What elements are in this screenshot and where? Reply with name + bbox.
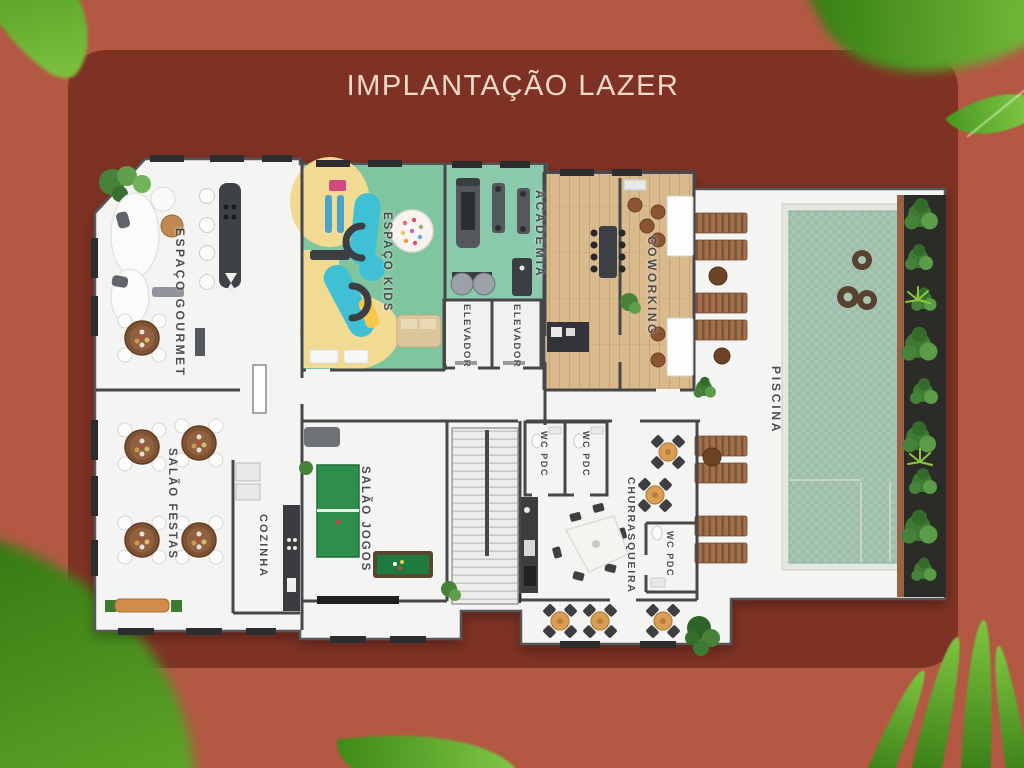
label-espaco-kids: ESPAÇO KIDS	[381, 212, 393, 312]
label-cozinha: COZINHA	[257, 514, 269, 578]
floor-plan-graphic	[0, 0, 1024, 768]
slide: IMPLANTAÇÃO LAZER	[0, 0, 1024, 768]
label-wc-pdc-1: WC PDC	[539, 431, 549, 477]
label-piscina: PISCINA	[769, 366, 783, 434]
label-elevador-1: ELEVADOR	[461, 304, 472, 368]
label-salao-festas: SALÃO FESTAS	[166, 448, 178, 560]
stairs	[452, 428, 518, 604]
hall-door	[253, 365, 266, 413]
label-coworking: COWORKING	[645, 236, 659, 336]
pool	[782, 204, 906, 570]
label-wc-pdc-3: WC PDC	[665, 531, 675, 577]
label-wc-pdc-2: WC PDC	[581, 431, 591, 477]
label-churrasqueira: CHURRASQUEIRA	[625, 477, 637, 594]
floor-plan: ESPAÇO GOURMET SALÃO FESTAS COZINHA ESPA…	[0, 0, 1024, 768]
label-salao-jogos: SALÃO JOGOS	[359, 466, 371, 572]
label-academia: ACADEMIA	[533, 190, 547, 279]
label-elevador-2: ELEVADOR	[511, 304, 522, 368]
ball-pit	[391, 210, 433, 252]
planter	[897, 195, 946, 597]
label-espaco-gourmet: ESPAÇO GOURMET	[173, 228, 187, 377]
